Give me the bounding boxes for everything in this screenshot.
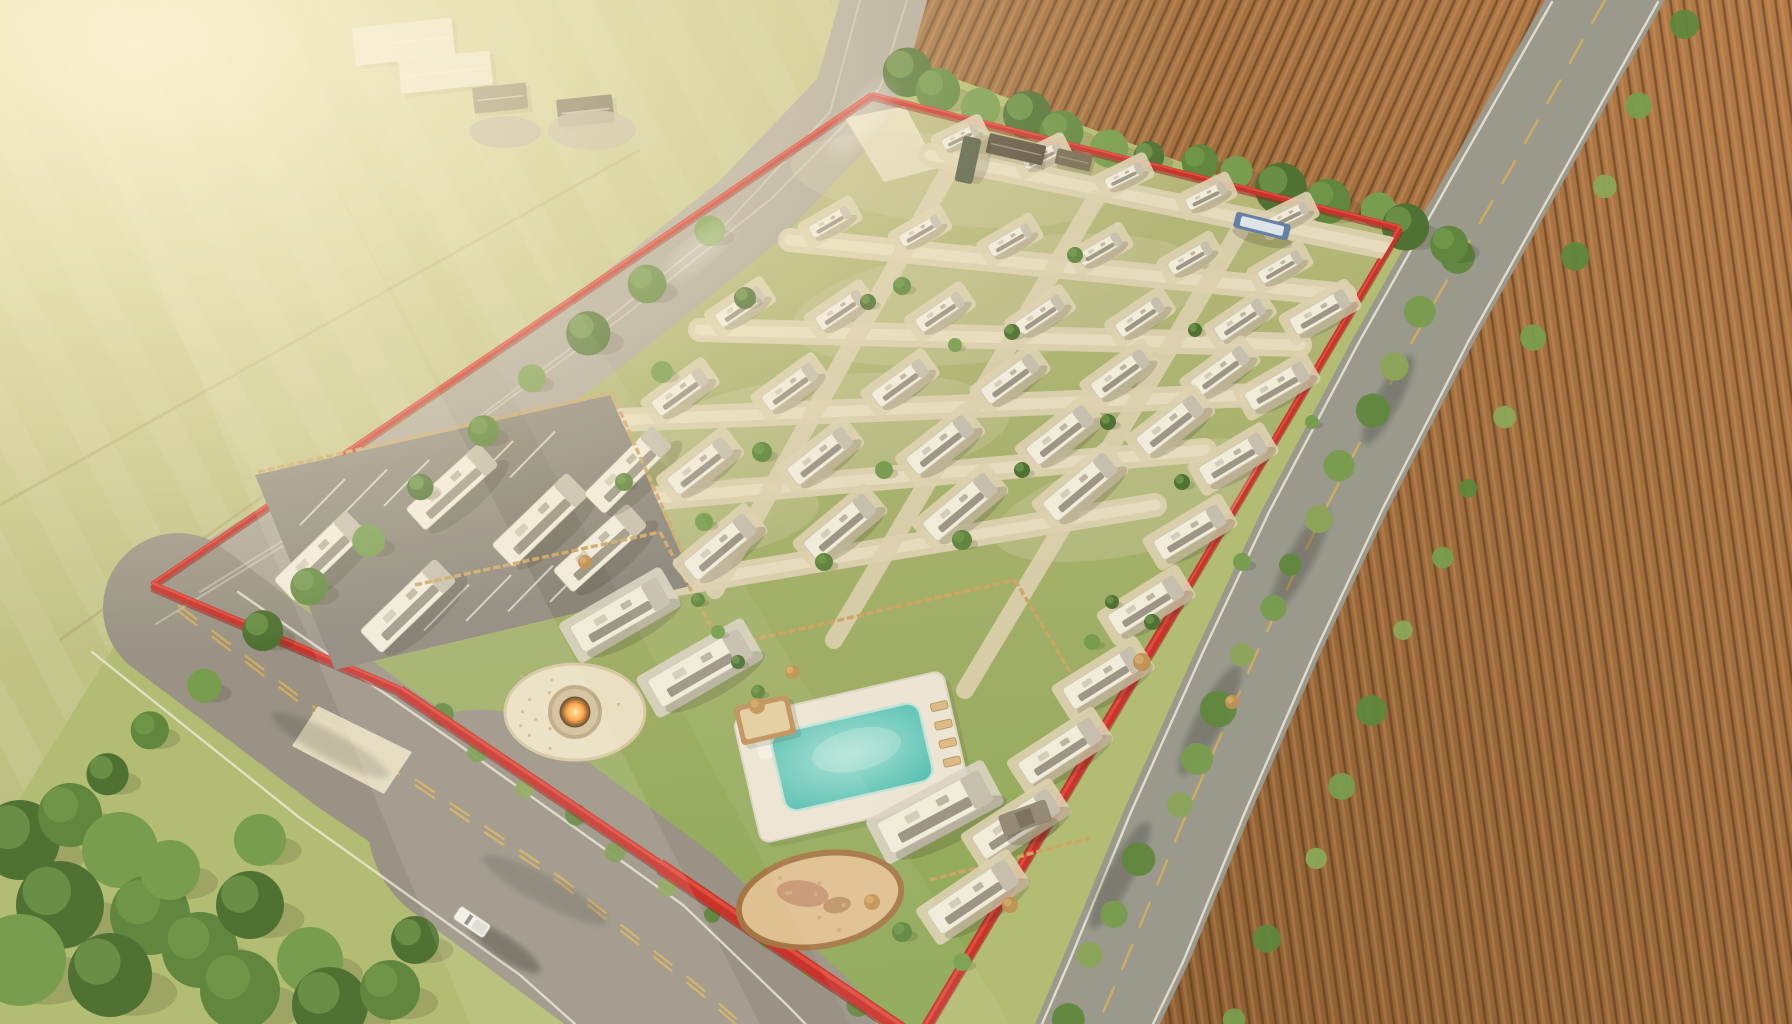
scene-canvas bbox=[0, 0, 1792, 1024]
aerial-photo-rv-campground bbox=[0, 0, 1792, 1024]
layer-atmosphere bbox=[0, 0, 1792, 1024]
warm-tint bbox=[0, 0, 1792, 1024]
